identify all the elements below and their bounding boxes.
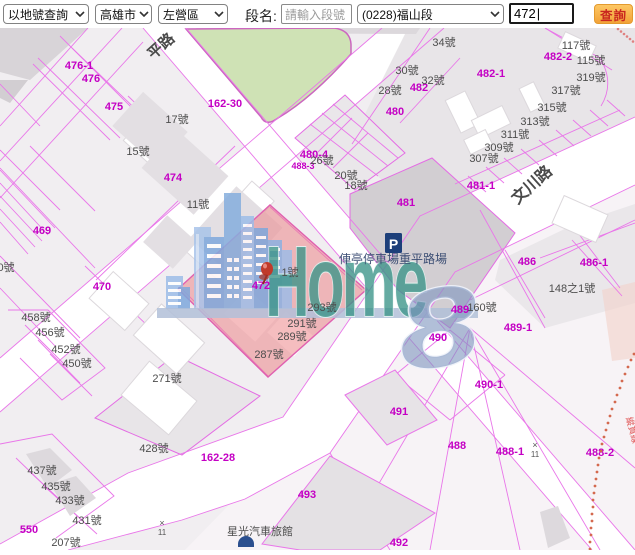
svg-text:P: P bbox=[389, 236, 398, 252]
svg-text:×: × bbox=[159, 518, 164, 528]
svg-text:433號: 433號 bbox=[55, 494, 84, 507]
svg-text:30號: 30號 bbox=[395, 64, 418, 77]
svg-text:315號: 315號 bbox=[537, 101, 566, 114]
svg-text:313號: 313號 bbox=[520, 115, 549, 128]
svg-text:481-1: 481-1 bbox=[467, 180, 495, 192]
svg-text:428號: 428號 bbox=[139, 442, 168, 455]
svg-text:1號: 1號 bbox=[281, 266, 298, 279]
svg-text:490-1: 490-1 bbox=[475, 379, 503, 391]
svg-text:11號: 11號 bbox=[187, 198, 209, 211]
svg-text:472: 472 bbox=[252, 280, 270, 292]
svg-text:115號: 115號 bbox=[577, 54, 606, 67]
svg-text:492: 492 bbox=[390, 537, 408, 549]
svg-text:15號: 15號 bbox=[126, 145, 149, 158]
svg-text:482-1: 482-1 bbox=[477, 68, 505, 80]
svg-text:291號: 291號 bbox=[287, 317, 316, 330]
svg-text:207號: 207號 bbox=[51, 536, 80, 549]
svg-text:160號: 160號 bbox=[467, 301, 496, 314]
svg-text:俥亭停車場重平路場: 俥亭停車場重平路場 bbox=[339, 251, 447, 266]
svg-text:469: 469 bbox=[33, 225, 51, 237]
svg-text:480: 480 bbox=[386, 106, 404, 118]
svg-text:481: 481 bbox=[397, 197, 415, 209]
svg-text:470: 470 bbox=[93, 281, 111, 293]
svg-text:474: 474 bbox=[164, 172, 183, 184]
svg-text:486-1: 486-1 bbox=[580, 257, 608, 269]
svg-text:117號: 117號 bbox=[562, 39, 591, 52]
svg-text:×: × bbox=[532, 440, 537, 450]
svg-text:162-28: 162-28 bbox=[201, 452, 235, 464]
svg-text:293號: 293號 bbox=[307, 301, 336, 314]
svg-text:488: 488 bbox=[448, 440, 466, 452]
svg-text:17號: 17號 bbox=[165, 113, 188, 126]
svg-text:18號: 18號 bbox=[344, 179, 367, 192]
svg-text:星光汽車旅館: 星光汽車旅館 bbox=[227, 524, 293, 538]
svg-text:287號: 287號 bbox=[254, 348, 283, 361]
svg-text:452號: 452號 bbox=[51, 343, 80, 356]
svg-text:0號: 0號 bbox=[0, 261, 15, 274]
svg-text:491: 491 bbox=[390, 406, 408, 418]
svg-text:162-30: 162-30 bbox=[208, 98, 242, 110]
svg-text:476-1: 476-1 bbox=[65, 60, 93, 72]
svg-text:458號: 458號 bbox=[21, 311, 50, 324]
svg-text:475: 475 bbox=[105, 101, 123, 113]
svg-text:148之1號: 148之1號 bbox=[549, 281, 595, 295]
svg-text:437號: 437號 bbox=[27, 464, 56, 477]
svg-text:11: 11 bbox=[531, 450, 540, 459]
svg-text:311號: 311號 bbox=[501, 128, 530, 141]
svg-text:488-1: 488-1 bbox=[496, 446, 524, 458]
svg-text:11: 11 bbox=[158, 528, 167, 537]
svg-text:271號: 271號 bbox=[152, 372, 181, 385]
svg-text:307號: 307號 bbox=[469, 152, 498, 165]
svg-text:435號: 435號 bbox=[41, 480, 70, 493]
svg-text:450號: 450號 bbox=[62, 357, 91, 370]
svg-text:482-2: 482-2 bbox=[544, 51, 572, 63]
svg-text:490: 490 bbox=[429, 332, 447, 344]
svg-text:489-1: 489-1 bbox=[504, 322, 532, 334]
svg-text:550: 550 bbox=[20, 524, 38, 536]
svg-text:289號: 289號 bbox=[277, 330, 306, 343]
svg-text:319號: 319號 bbox=[576, 71, 605, 84]
svg-text:317號: 317號 bbox=[551, 84, 580, 97]
svg-text:34號: 34號 bbox=[432, 36, 455, 49]
svg-text:486: 486 bbox=[518, 256, 536, 268]
svg-text:476: 476 bbox=[82, 73, 100, 85]
svg-text:431號: 431號 bbox=[72, 514, 101, 527]
svg-text:456號: 456號 bbox=[35, 326, 64, 339]
svg-text:493: 493 bbox=[298, 489, 316, 501]
svg-text:32號: 32號 bbox=[421, 74, 444, 87]
svg-text:26號: 26號 bbox=[310, 154, 333, 167]
svg-text:28號: 28號 bbox=[378, 84, 401, 97]
